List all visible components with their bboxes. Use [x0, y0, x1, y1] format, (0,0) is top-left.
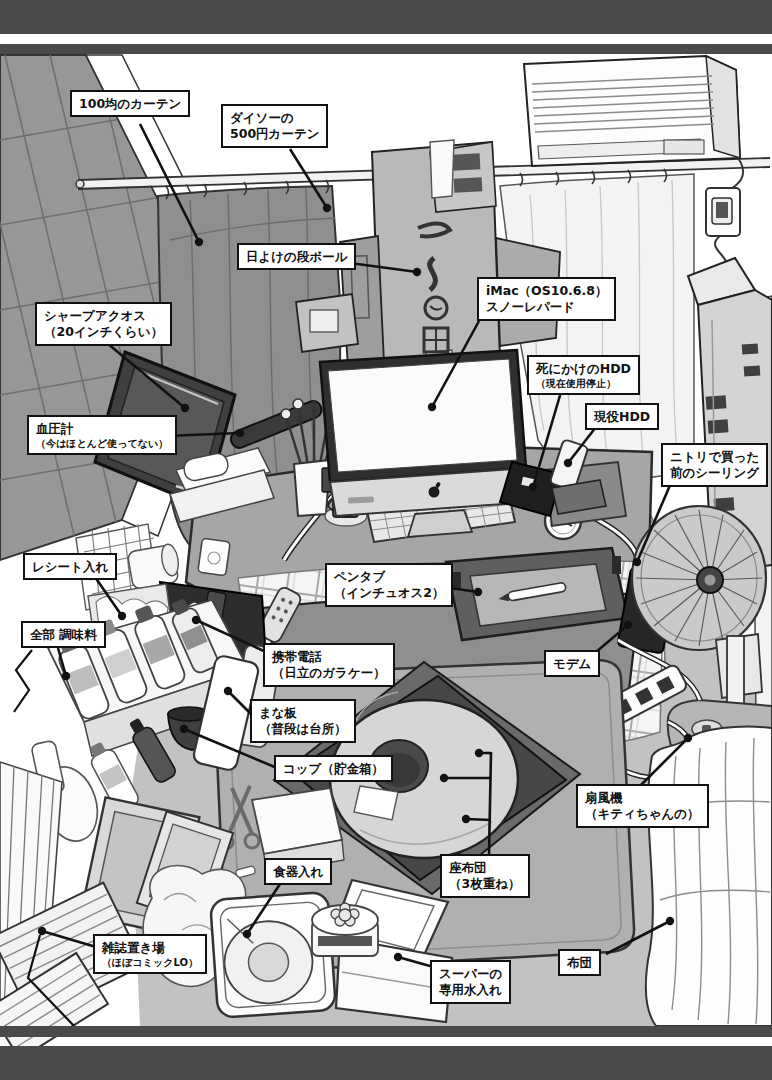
label-sunshade-cardboard: 日よけの段ボール	[237, 243, 356, 270]
annotated-room-illustration: 100均のカーテン ダイソーの500円カーテン 日よけの段ボール シャープアクオ…	[0, 0, 772, 1080]
label-100yen-curtain: 100均のカーテン	[70, 90, 190, 117]
label-cutting-board: まな板（普段は台所）	[250, 699, 356, 743]
label-receipt-holder: レシート入れ	[23, 553, 117, 580]
label-cup-piggy-bank: コップ（貯金箱）	[274, 755, 393, 782]
label-mobile-phone: 携帯電話（日立のガラケー）	[263, 643, 395, 687]
label-imac: iMac（OS10.6.8）スノーレパード	[477, 277, 616, 321]
room-illustration	[0, 0, 772, 1080]
stacked-pot	[312, 903, 378, 956]
label-modem: モデム	[544, 650, 600, 677]
label-condiments: 全部 調味料	[21, 621, 106, 648]
label-dying-hdd: 死にかけのHDD（現在使用停止）	[527, 355, 640, 395]
label-blood-pressure: 血圧計（今はほとんど使ってない）	[27, 415, 177, 455]
label-dish-container: 食器入れ	[264, 858, 332, 885]
label-pen-tablet: ペンタブ（インチュオス2）	[325, 563, 453, 607]
label-futon: 布団	[558, 949, 601, 976]
label-fan: 扇風機（キティちゃんの）	[576, 784, 709, 828]
label-water-jug: スーパーの専用水入れ	[430, 960, 511, 1004]
label-nitori-ceiling: ニトリで買った前のシーリング	[661, 443, 768, 487]
label-daiso-curtain: ダイソーの500円カーテン	[221, 104, 328, 148]
futon-drawing	[646, 727, 772, 1027]
label-sharp-aquos: シャープアクオス（20インチくらい）	[35, 302, 172, 346]
label-active-hdd: 現役HDD	[585, 403, 659, 430]
printed-mug	[198, 538, 230, 576]
label-magazine-storage: 雑誌置き場（ほぼコミックLO）	[93, 934, 207, 974]
label-zabuton: 座布団（3枚重ね）	[440, 854, 530, 898]
